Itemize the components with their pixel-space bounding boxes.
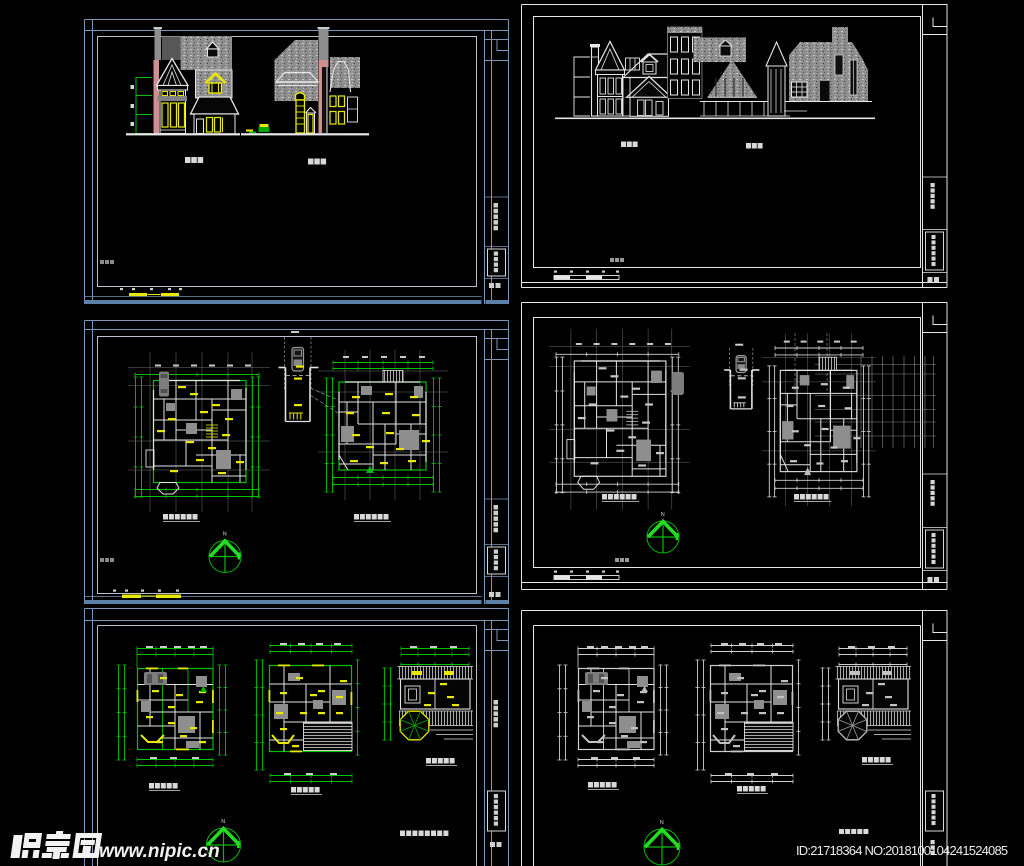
svg-text:N: N xyxy=(661,512,665,518)
svg-text:ID:21718364 NO:201810010424152: ID:21718364 NO:2018100104241524085 xyxy=(796,843,1008,858)
svg-text:N: N xyxy=(221,819,225,825)
svg-text:www.nipic.cn: www.nipic.cn xyxy=(99,841,220,862)
svg-text:N: N xyxy=(223,532,227,538)
svg-text:N: N xyxy=(660,820,664,826)
